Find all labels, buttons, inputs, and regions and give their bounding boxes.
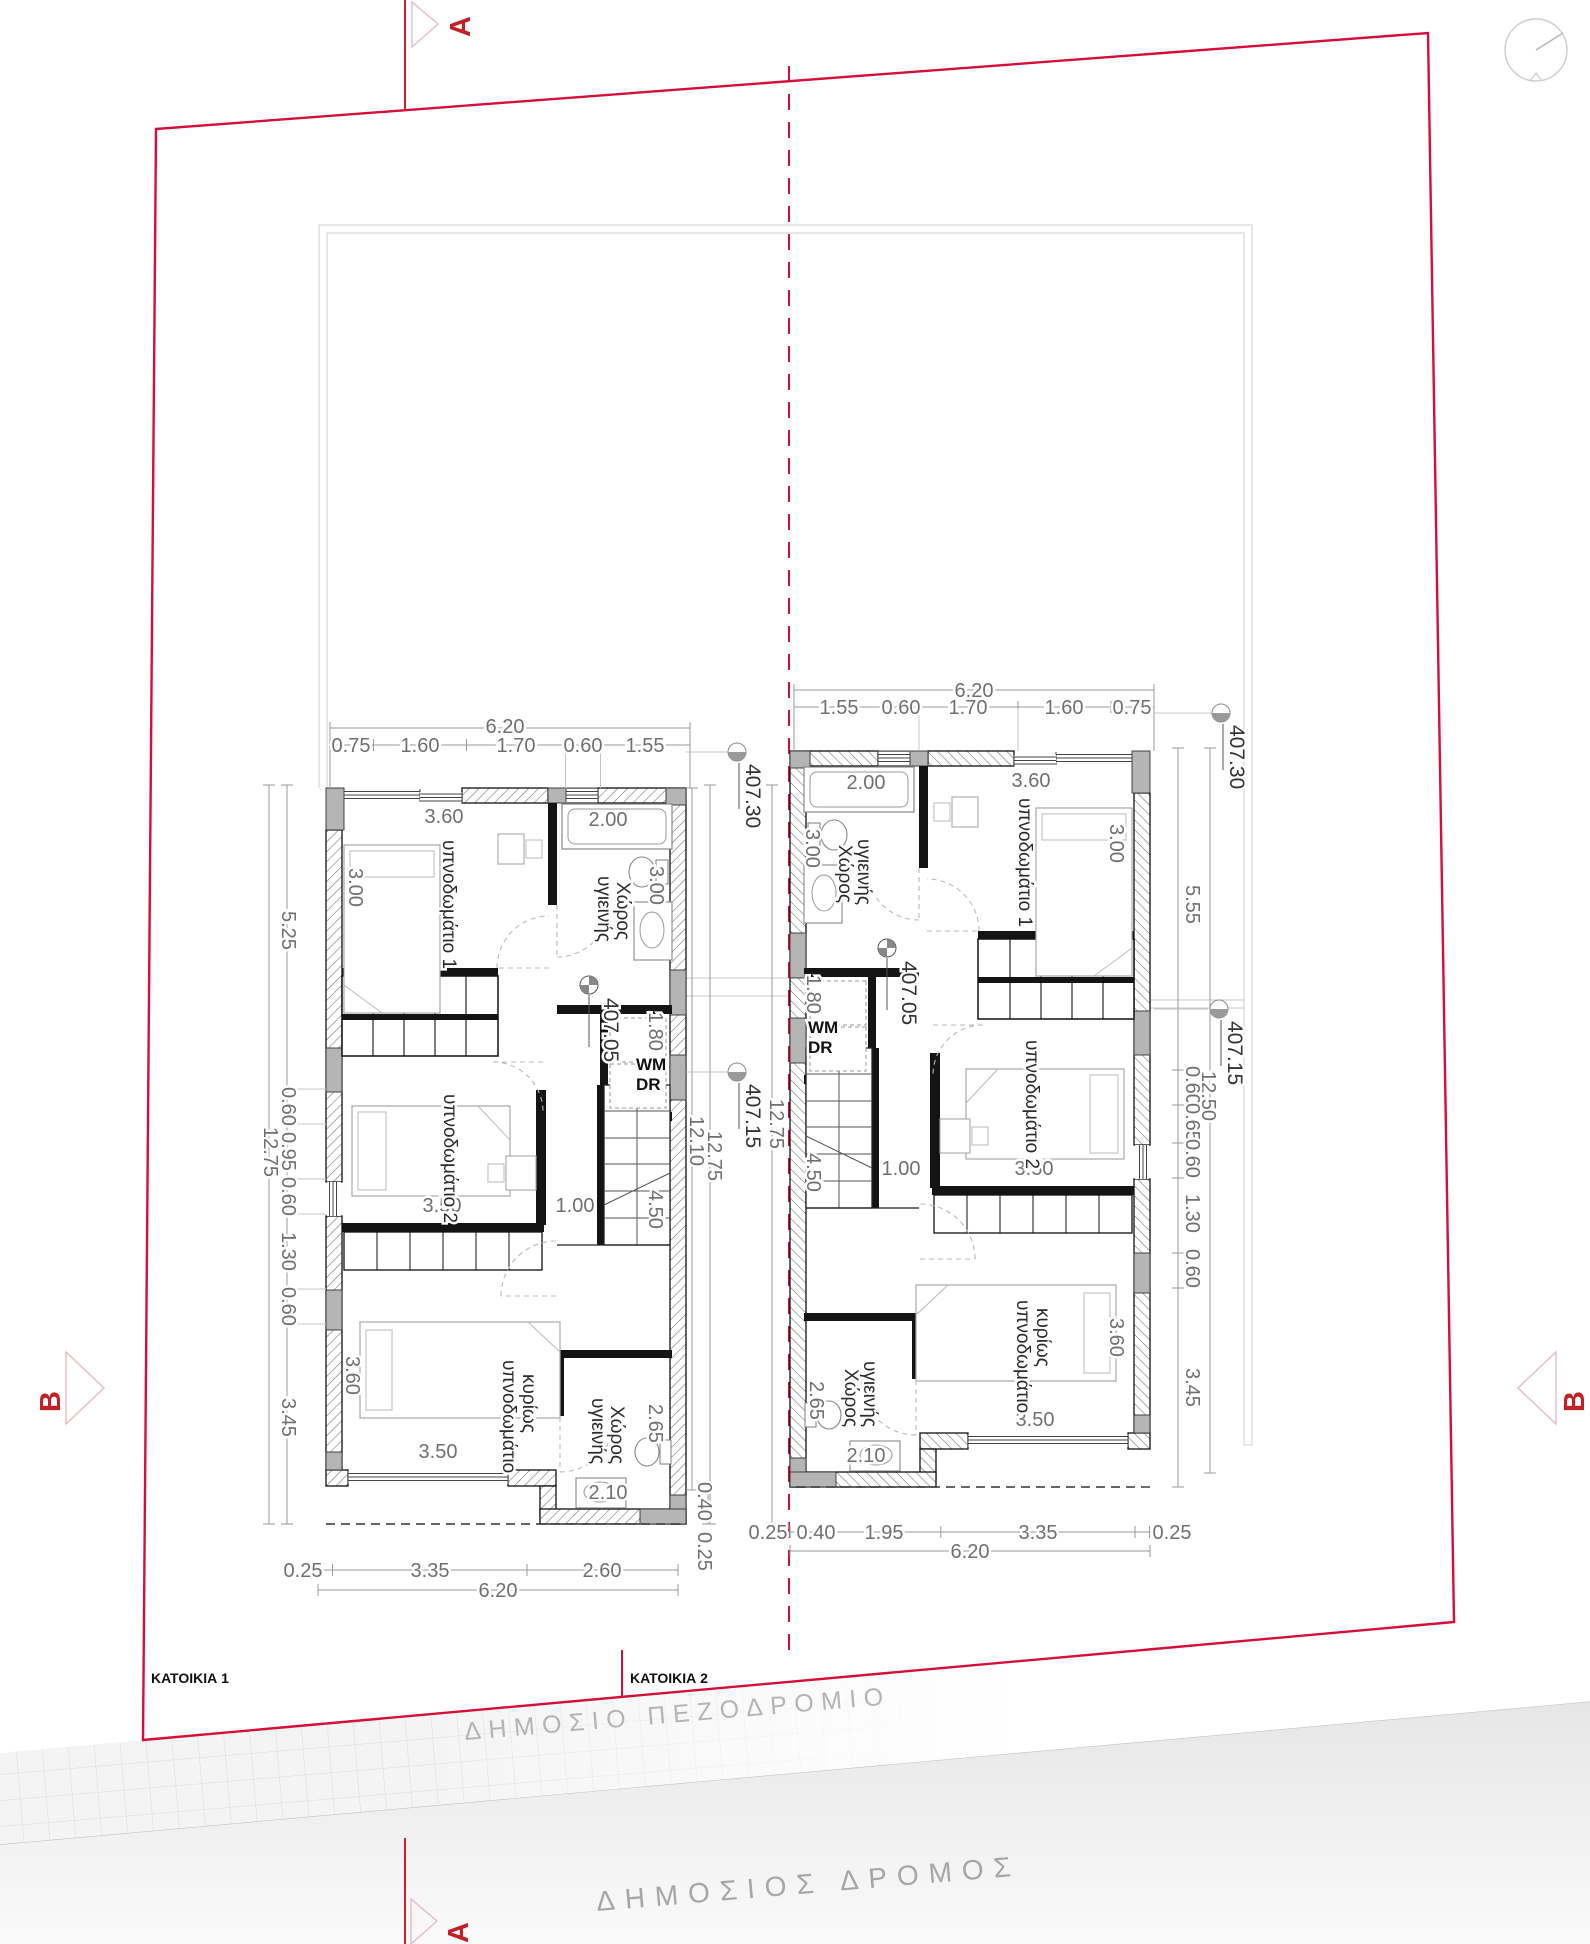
dim-label: 2.65: [644, 1404, 666, 1443]
room-label-bedroom2: υπνοδωμάτιο 2: [439, 1094, 460, 1223]
compass-icon: [1505, 19, 1567, 81]
section-marker-a-top: A: [405, 0, 477, 110]
dim-label: 0.60: [564, 735, 603, 757]
dim-label: 0.60: [882, 697, 921, 719]
room-label-bath1-line1: Χώρος: [612, 882, 633, 940]
dim-label: 4.50: [802, 1153, 824, 1192]
section-letter-b: B: [35, 1391, 67, 1412]
dim-label: 0.25: [1153, 1522, 1192, 1544]
section-marker-b-left: B: [35, 1352, 104, 1424]
dim-label: 0.95: [277, 1132, 299, 1171]
house-2-title: ΚΑΤΟΙΚΙΑ 2: [630, 1670, 708, 1686]
room-label-bath1-line1: Χώρος: [834, 845, 855, 903]
dim-label: 1.70: [497, 735, 536, 757]
dim-label: 0.60: [1181, 1249, 1203, 1288]
dim-label: 0.60: [277, 1087, 299, 1126]
section-marker-b-right: B: [1518, 1352, 1590, 1424]
dim-label: 0.60: [1181, 1066, 1203, 1105]
dim-label: 1.80: [802, 975, 824, 1014]
room-label-bath1-line2: υγιεινής: [853, 839, 874, 905]
room-label-master-line1: κυρίως: [518, 1374, 539, 1433]
washing-machine-label: WM: [636, 1055, 666, 1074]
dim-label: 2.10: [847, 1445, 886, 1467]
level-marker-407-30: 407.30: [1212, 704, 1248, 789]
dim-label: 0.40: [693, 1482, 715, 1521]
dim-label: 3.00: [801, 829, 823, 868]
dim-label: 0.25: [284, 1560, 323, 1582]
dim-label: 1.95: [865, 1522, 904, 1544]
dim-label: 0.40: [797, 1522, 836, 1544]
room-label-bath2-line1: Χώρος: [840, 1369, 861, 1427]
dim-label: 0.75: [1113, 697, 1152, 719]
washing-machine-label: WM: [808, 1018, 838, 1037]
dim-label: 0.60: [1181, 1139, 1203, 1178]
floor-plan-sheet: 6.20 0.75 1.60 1.70 0.60 1.55 12.75 5.25…: [0, 0, 1590, 1944]
dim-label: 3.60: [1105, 1318, 1127, 1357]
level-marker-407-15: 407.15: [728, 1063, 764, 1148]
dim-label: 2.00: [847, 772, 886, 794]
svg-text:407.05: 407.05: [897, 961, 920, 1025]
room-label-master-line1: κυρίως: [1032, 1308, 1053, 1367]
dim-label: 3.00: [344, 868, 366, 907]
dim-label: 5.55: [1181, 885, 1203, 924]
room-label-master-line2: υπνοδωμάτιο: [1012, 1300, 1033, 1413]
dim-label: 1.70: [949, 697, 988, 719]
room-label-bedroom2: υπνοδωμάτιο 2: [1021, 1040, 1042, 1169]
dim-label: 2.65: [805, 1381, 827, 1420]
dim-label: 1.60: [401, 735, 440, 757]
dim-label: 6.20: [479, 1580, 518, 1602]
dim-label: 3.00: [645, 866, 667, 905]
section-letter-a: A: [443, 1922, 475, 1943]
level-marker-407-30: 407.30: [728, 743, 764, 828]
level-marker-407-05: 407.05: [878, 939, 920, 1025]
dim-label: 3.35: [1019, 1522, 1058, 1544]
dim-label: 3.60: [1012, 770, 1051, 792]
dim-label: 3.60: [425, 806, 464, 828]
dim-label: 5.25: [277, 911, 299, 950]
svg-text:407.05: 407.05: [599, 998, 622, 1062]
dim-label: 12.75: [765, 1099, 787, 1149]
dim-label: 0.25: [749, 1522, 788, 1544]
section-letter-b: B: [1559, 1391, 1590, 1412]
dim-label: 1.00: [882, 1158, 921, 1180]
dim-label: 6.20: [951, 1541, 990, 1563]
dim-label: 1.00: [556, 1195, 595, 1217]
room-label-bedroom1: υπνοδωμάτιο 1: [1014, 798, 1035, 927]
dim-label: 1.80: [644, 1012, 666, 1051]
dim-label: 3.45: [277, 1398, 299, 1437]
dim-label: 3.45: [1181, 1368, 1203, 1407]
dim-label: 1.30: [277, 1232, 299, 1271]
dim-label: 12.75: [703, 1131, 725, 1181]
dim-label: 1.60: [1045, 697, 1084, 719]
room-label-bath2-line1: Χώρος: [606, 1406, 627, 1464]
room-label-bath2-line2: υγιεινής: [587, 1398, 608, 1464]
svg-text:407.15: 407.15: [741, 1084, 764, 1148]
section-triangle-icon: [1518, 1352, 1556, 1424]
dim-label: 3.35: [411, 1560, 450, 1582]
dim-label: 1.30: [1181, 1194, 1203, 1233]
dim-label: 3.50: [419, 1441, 458, 1463]
dim-label: 0.75: [332, 735, 371, 757]
svg-text:407.15: 407.15: [1223, 1021, 1246, 1085]
svg-text:407.30: 407.30: [1225, 725, 1248, 789]
room-label-master-line2: υπνοδωμάτιο: [498, 1360, 519, 1473]
dim-label: 1.55: [626, 735, 665, 757]
dim-label: 2.00: [589, 809, 628, 831]
dryer-label: DR: [636, 1075, 661, 1094]
dim-label: 3.60: [341, 1356, 363, 1395]
plan-drawing: 6.20 0.75 1.60 1.70 0.60 1.55 12.75 5.25…: [0, 0, 1590, 1944]
dim-label: 2.60: [583, 1560, 622, 1582]
dim-label: 0.25: [693, 1532, 715, 1571]
room-label-bedroom1: υπνοδωμάτιο 1: [438, 840, 459, 969]
room-label-bath2-line2: υγιεινής: [859, 1361, 880, 1427]
dim-label: 2.10: [589, 1482, 628, 1504]
section-triangle-icon: [66, 1352, 104, 1424]
dim-label: 1.55: [820, 697, 859, 719]
house-1-title: ΚΑΤΟΙΚΙΑ 1: [151, 1670, 229, 1686]
dim-label: 0.65: [1181, 1103, 1203, 1142]
svg-text:407.30: 407.30: [741, 764, 764, 828]
dim-label: 4.50: [644, 1190, 666, 1229]
section-letter-a: A: [445, 16, 477, 37]
dim-label: 0.60: [277, 1177, 299, 1216]
dim-label: 0.60: [277, 1287, 299, 1326]
dryer-label: DR: [808, 1038, 833, 1057]
level-marker-407-05: 407.05: [580, 976, 622, 1062]
section-triangle-icon: [412, 2, 438, 47]
dim-label: 3.00: [1105, 824, 1127, 863]
room-label-bath1-line2: υγιεινής: [593, 876, 614, 942]
